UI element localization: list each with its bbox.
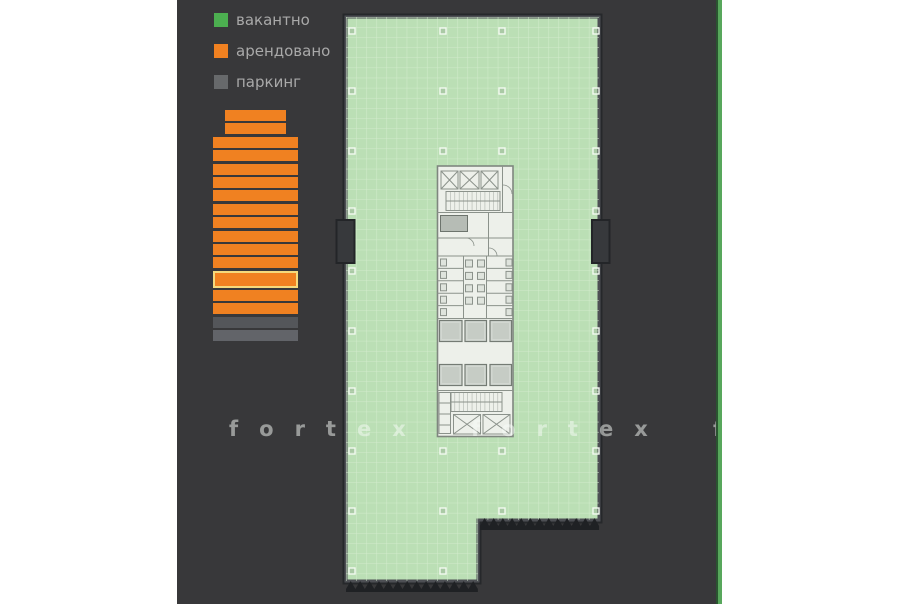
- floor-bar[interactable]: [213, 204, 298, 215]
- building-core: [438, 166, 514, 437]
- floor-bar[interactable]: [213, 150, 298, 161]
- column-marker: [349, 88, 355, 94]
- floor-bar[interactable]: [213, 177, 298, 188]
- page-background: вакантно арендовано паркинг: [0, 0, 900, 604]
- rented-swatch-icon: [214, 44, 228, 58]
- legend-item-rented: арендовано: [214, 44, 330, 58]
- legend-label: вакантно: [236, 13, 310, 27]
- legend-item-vacant: вакантно: [214, 13, 330, 27]
- column-marker: [440, 508, 446, 514]
- column-marker: [349, 148, 355, 154]
- column-marker: [593, 328, 599, 334]
- floor-bar[interactable]: [213, 257, 298, 268]
- legend-item-parking: паркинг: [214, 75, 330, 89]
- column-marker: [349, 28, 355, 34]
- floor-bar-selected[interactable]: [213, 271, 298, 288]
- floor-bar[interactable]: [213, 290, 298, 301]
- floor-bar[interactable]: [225, 123, 286, 134]
- legend-label: паркинг: [236, 75, 301, 89]
- column-marker: [593, 28, 599, 34]
- floor-bar[interactable]: [213, 164, 298, 175]
- column-marker: [499, 148, 505, 154]
- floor-bar[interactable]: [213, 190, 298, 201]
- column-marker: [593, 268, 599, 274]
- legend-label: арендовано: [236, 44, 330, 58]
- column-marker: [593, 448, 599, 454]
- column-marker: [349, 568, 355, 574]
- column-marker: [440, 28, 446, 34]
- floor-bar[interactable]: [213, 217, 298, 228]
- floor-bar[interactable]: [225, 110, 286, 121]
- floorplan-svg[interactable]: [330, 8, 622, 600]
- column-marker: [440, 148, 446, 154]
- column-marker: [349, 268, 355, 274]
- column-marker: [440, 448, 446, 454]
- floor-stack: [213, 110, 298, 344]
- legend: вакантно арендовано паркинг: [214, 13, 330, 106]
- floorplan[interactable]: [330, 8, 622, 600]
- floor-bar[interactable]: [213, 137, 298, 148]
- column-marker: [349, 208, 355, 214]
- column-marker: [349, 328, 355, 334]
- column-marker: [440, 568, 446, 574]
- floor-bar[interactable]: [213, 317, 298, 328]
- column-marker: [593, 208, 599, 214]
- floor-bar[interactable]: [213, 303, 298, 314]
- panel-right-accent-stripe: [716, 0, 722, 604]
- floor-bar[interactable]: [213, 330, 298, 341]
- column-marker: [349, 388, 355, 394]
- column-marker: [593, 388, 599, 394]
- floor-bar[interactable]: [213, 244, 298, 255]
- column-marker: [499, 28, 505, 34]
- column-marker: [440, 88, 446, 94]
- vacant-swatch-icon: [214, 13, 228, 27]
- column-marker: [349, 448, 355, 454]
- column-marker: [499, 508, 505, 514]
- column-marker: [499, 88, 505, 94]
- column-marker: [593, 88, 599, 94]
- column-marker: [593, 508, 599, 514]
- column-marker: [593, 148, 599, 154]
- floor-bar[interactable]: [213, 231, 298, 242]
- column-marker: [349, 508, 355, 514]
- column-marker: [499, 448, 505, 454]
- parking-swatch-icon: [214, 75, 228, 89]
- building-panel: вакантно арендовано паркинг: [177, 0, 722, 604]
